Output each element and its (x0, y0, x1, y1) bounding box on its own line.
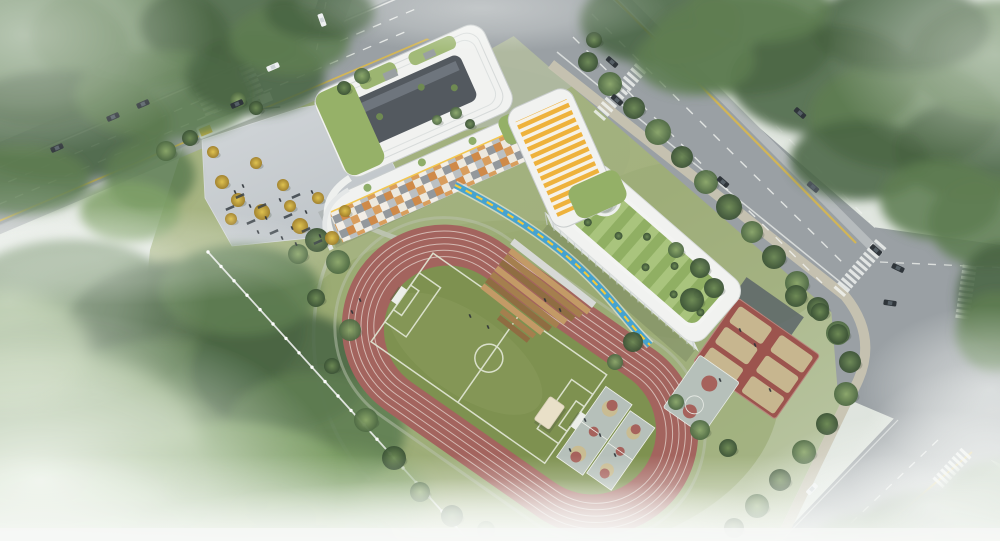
tree (598, 72, 622, 96)
fence-post (310, 366, 313, 369)
fence-post (258, 308, 261, 311)
tree (249, 101, 263, 115)
tree (741, 221, 763, 243)
fence-post (349, 409, 352, 412)
tree (465, 119, 475, 129)
fence-post (284, 337, 287, 340)
yellow-tree (250, 157, 262, 169)
tree (354, 408, 378, 432)
tree (828, 324, 848, 344)
fence-post (271, 322, 274, 325)
forest-blob (635, 25, 755, 95)
tree (645, 119, 671, 145)
yellow-tree (215, 175, 229, 189)
fence-post (297, 351, 300, 354)
tree (694, 170, 718, 194)
tree (811, 303, 829, 321)
tree (339, 319, 361, 341)
tree (307, 289, 325, 307)
tree (785, 285, 807, 307)
forest-blob (880, 160, 1000, 240)
tree (704, 278, 724, 298)
tree (668, 242, 684, 258)
car-roof (888, 301, 893, 305)
tree (623, 332, 643, 352)
yellow-tree (284, 200, 296, 212)
yellow-tree (207, 146, 219, 158)
fence-post (323, 380, 326, 383)
tree (839, 351, 861, 373)
tree (324, 358, 340, 374)
tree (668, 394, 684, 410)
tree (716, 194, 742, 220)
tree (690, 420, 710, 440)
tree (680, 288, 704, 312)
tree (690, 258, 710, 278)
tree (671, 146, 693, 168)
tree (337, 81, 351, 95)
yellow-tree (312, 192, 324, 204)
tree (834, 382, 858, 406)
tree (182, 130, 198, 146)
yellow-tree (339, 205, 351, 217)
tree (156, 141, 176, 161)
tree (719, 439, 737, 457)
tree (762, 245, 786, 269)
tree (354, 68, 370, 84)
fence-post (336, 394, 339, 397)
yellow-tree (277, 179, 289, 191)
bottom-edge-haze (0, 528, 1000, 541)
tree (432, 115, 442, 125)
fence-post (375, 438, 378, 441)
campus-aerial-render (0, 0, 1000, 541)
tree (578, 52, 598, 72)
tree (623, 97, 645, 119)
tree (607, 354, 623, 370)
tree (450, 107, 462, 119)
render-canvas (0, 0, 1000, 541)
